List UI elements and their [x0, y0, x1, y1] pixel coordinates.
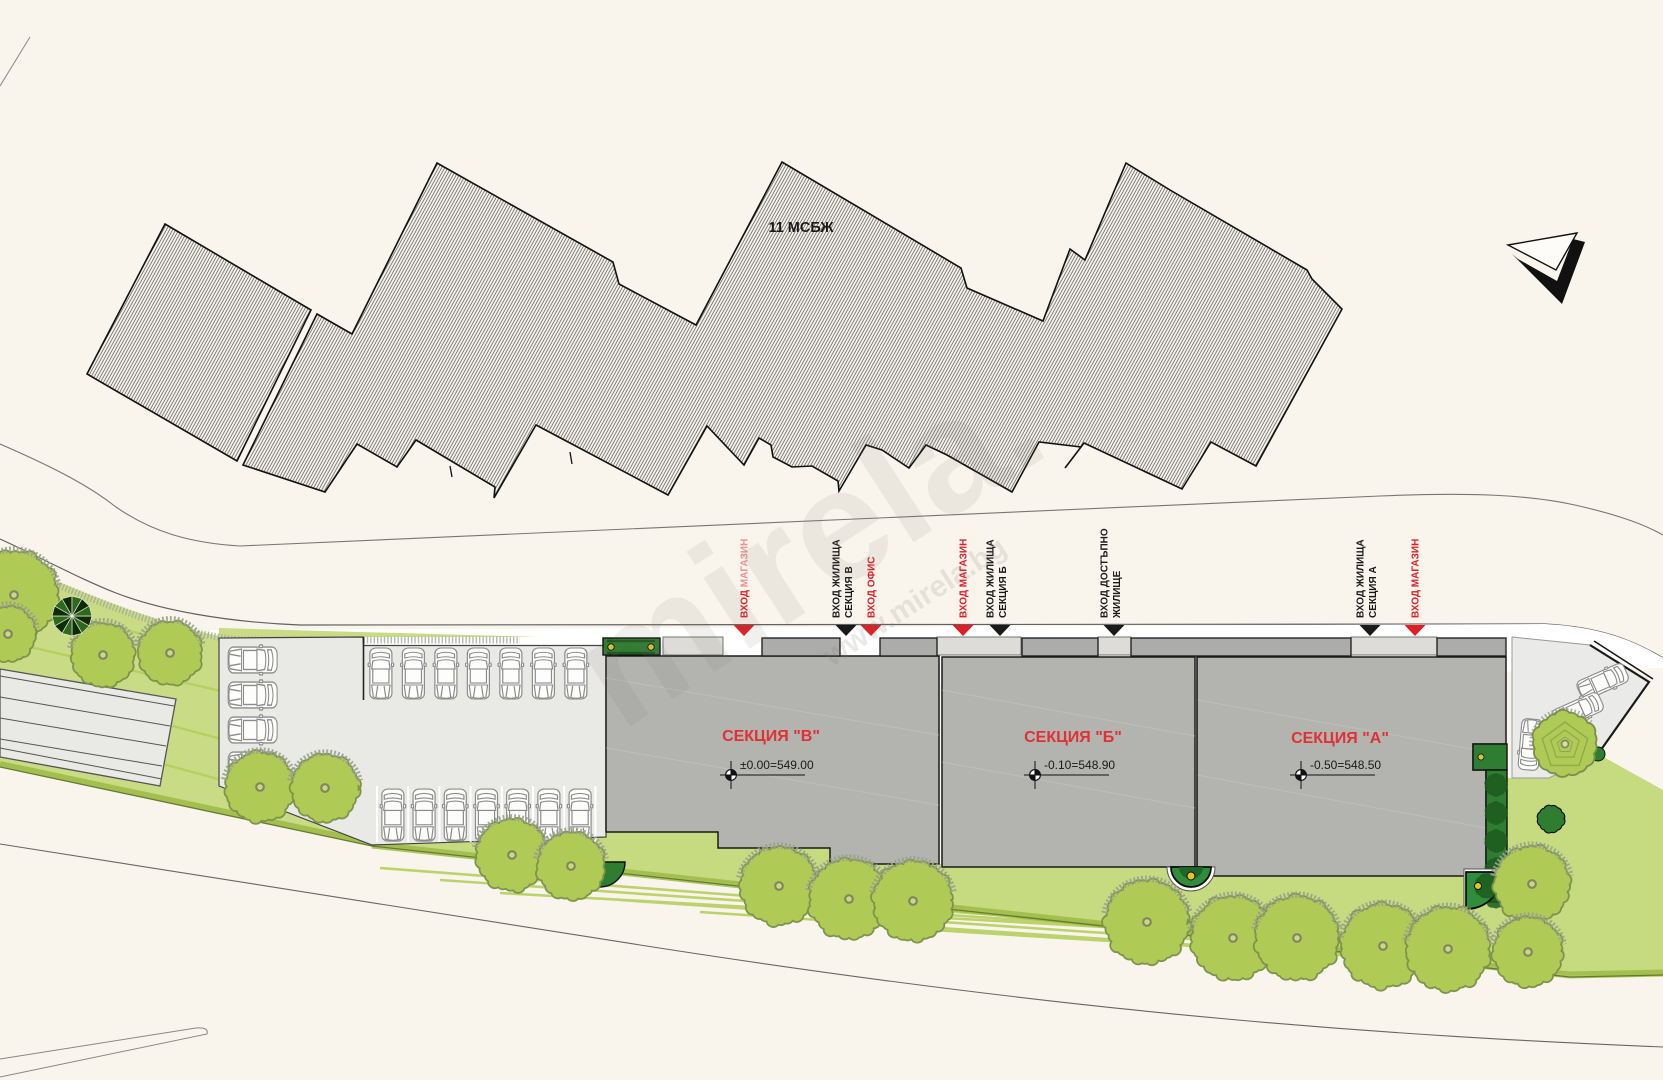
- svg-text:ВХОД МАГАЗИН: ВХОД МАГАЗИН: [1411, 539, 1422, 618]
- svg-text:ВХОД ЖИЛИЩА: ВХОД ЖИЛИЩА: [1356, 539, 1367, 618]
- svg-text:ВХОД ДОСТЪПНО: ВХОД ДОСТЪПНО: [1100, 528, 1111, 618]
- svg-text:11 МСБЖ: 11 МСБЖ: [768, 220, 834, 236]
- svg-text:ЖИЛИЩЕ: ЖИЛИЩЕ: [1112, 570, 1123, 619]
- svg-text:±0.00=549.00: ±0.00=549.00: [740, 758, 814, 772]
- svg-text:СЕКЦИЯ А: СЕКЦИЯ А: [1368, 566, 1379, 618]
- svg-text:СЕКЦИЯ "Б": СЕКЦИЯ "Б": [1024, 729, 1122, 746]
- svg-text:СЕКЦИЯ "А": СЕКЦИЯ "А": [1291, 730, 1389, 747]
- svg-text:СЕКЦИЯ Б: СЕКЦИЯ Б: [998, 566, 1009, 618]
- svg-text:-0.50=548.50: -0.50=548.50: [1310, 758, 1381, 772]
- svg-text:-0.10=548.90: -0.10=548.90: [1044, 758, 1115, 772]
- svg-text:СЕКЦИЯ "В": СЕКЦИЯ "В": [722, 728, 820, 745]
